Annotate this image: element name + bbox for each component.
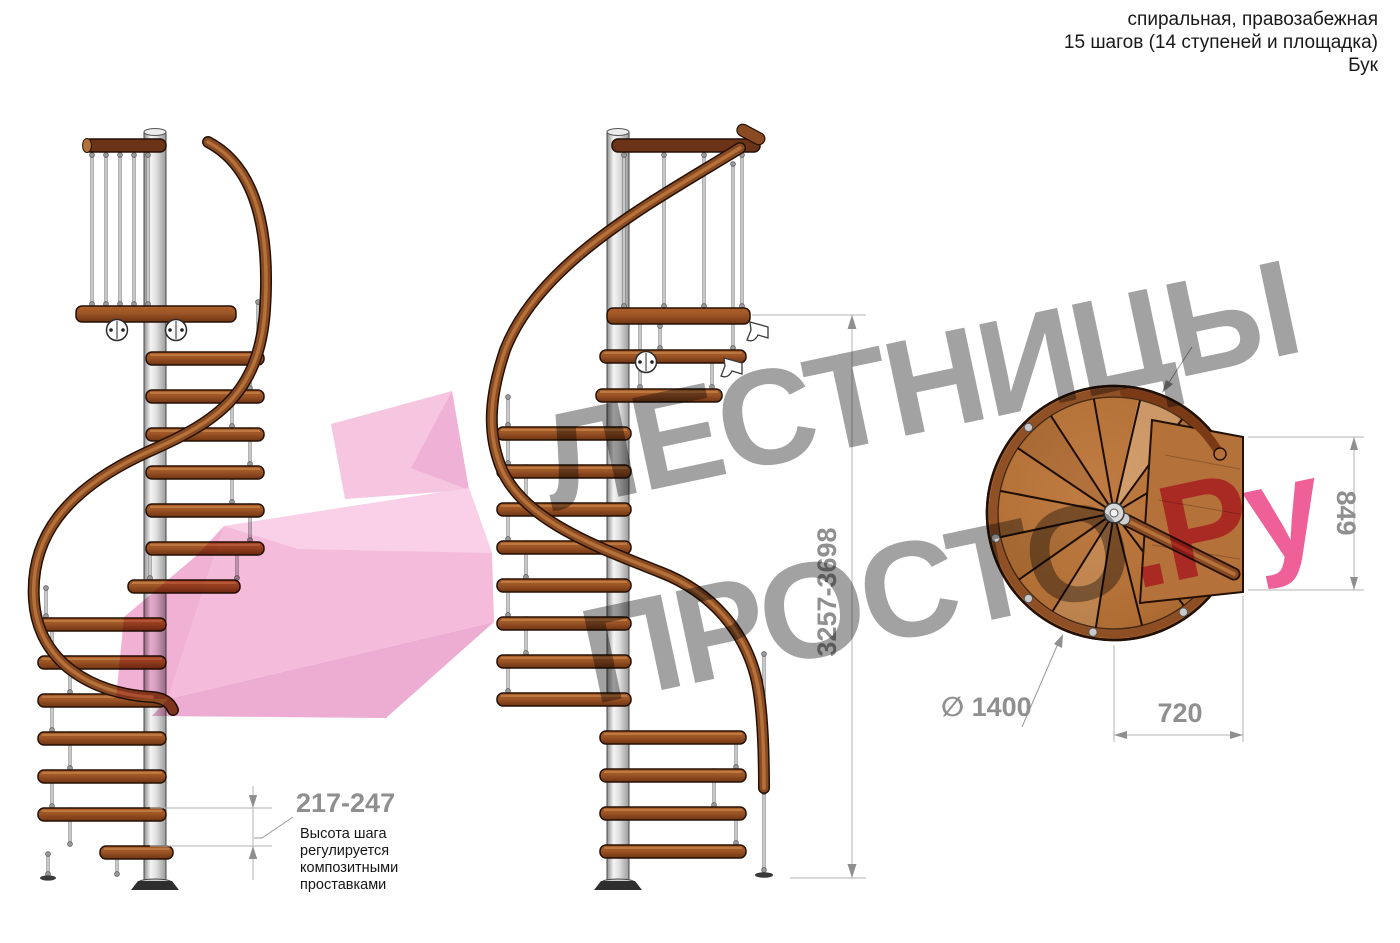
tread (600, 845, 746, 858)
rim-connector (1179, 608, 1187, 616)
baluster-connector (662, 153, 667, 158)
plan-view (987, 386, 1243, 640)
tread (497, 693, 631, 706)
stair-type-line: спиральная, правозабежная (1064, 8, 1378, 31)
baluster-connector (46, 852, 51, 857)
leader-landing-pointer (1162, 347, 1192, 393)
tread (600, 807, 746, 820)
baluster-foot (40, 875, 56, 880)
pole-top-cap (144, 129, 166, 136)
dimension-landing-depth: 849 (1248, 437, 1364, 590)
handrail-end-cap (83, 139, 92, 153)
tread (600, 769, 746, 782)
baluster-connector (506, 395, 511, 400)
wall-bracket (747, 322, 768, 341)
top-handrail (84, 139, 166, 152)
pole-top-cap (607, 129, 629, 136)
landing-depth-value: 849 (1331, 490, 1361, 535)
baluster-connector (762, 652, 767, 657)
tread (146, 504, 264, 517)
drawing-sheet: 217-247 3257-3698 720 849 ∅ 1400 (0, 0, 1400, 943)
landing-width-value: 720 (1157, 698, 1202, 728)
landing-platform (76, 306, 236, 322)
step-height-note: Высота шага регулируется композитными пр… (300, 826, 398, 894)
tread (146, 390, 264, 403)
baluster-foot (755, 872, 773, 878)
baluster-connector (731, 162, 736, 167)
baluster-connector (104, 153, 109, 158)
tread (146, 466, 264, 479)
tread (38, 770, 166, 783)
baluster-connector (132, 153, 137, 158)
tread (497, 503, 631, 516)
landing-platform (607, 308, 750, 324)
dimension-total-height: 3257-3698 (752, 315, 866, 878)
rim-rail-cap (1214, 448, 1226, 460)
plan-center-hub (1104, 503, 1124, 523)
diameter-value: ∅ 1400 (941, 692, 1032, 722)
baluster-connector (90, 153, 95, 158)
tread (497, 617, 631, 630)
step-height-value: 217-247 (296, 788, 395, 818)
baluster-connector (702, 153, 707, 158)
baluster-connector (44, 586, 49, 591)
tread (596, 389, 722, 402)
tread (497, 465, 631, 478)
tread (38, 732, 166, 745)
tread (146, 352, 264, 365)
total-height-value: 3257-3698 (812, 527, 842, 656)
tread (497, 655, 631, 668)
tread (100, 846, 173, 859)
rim-connector (1024, 594, 1032, 602)
rim-connector (1024, 423, 1032, 431)
staircase-technical-drawing: 217-247 3257-3698 720 849 ∅ 1400 (0, 0, 1400, 943)
spec-header: спиральная, правозабежная 15 шагов (14 с… (1064, 8, 1378, 77)
tread (600, 731, 746, 744)
tread (497, 427, 631, 440)
baluster-connector (118, 153, 123, 158)
tread (38, 808, 166, 821)
material-line: Бук (1064, 54, 1378, 77)
baluster-connector (146, 153, 151, 158)
tread (497, 579, 631, 592)
dimension-diameter: ∅ 1400 (941, 634, 1063, 727)
baluster-connector (622, 153, 627, 158)
steps-count-line: 15 шагов (14 ступеней и площадка) (1064, 31, 1378, 54)
rim-connector (1089, 628, 1097, 636)
rim-connector (991, 534, 999, 542)
